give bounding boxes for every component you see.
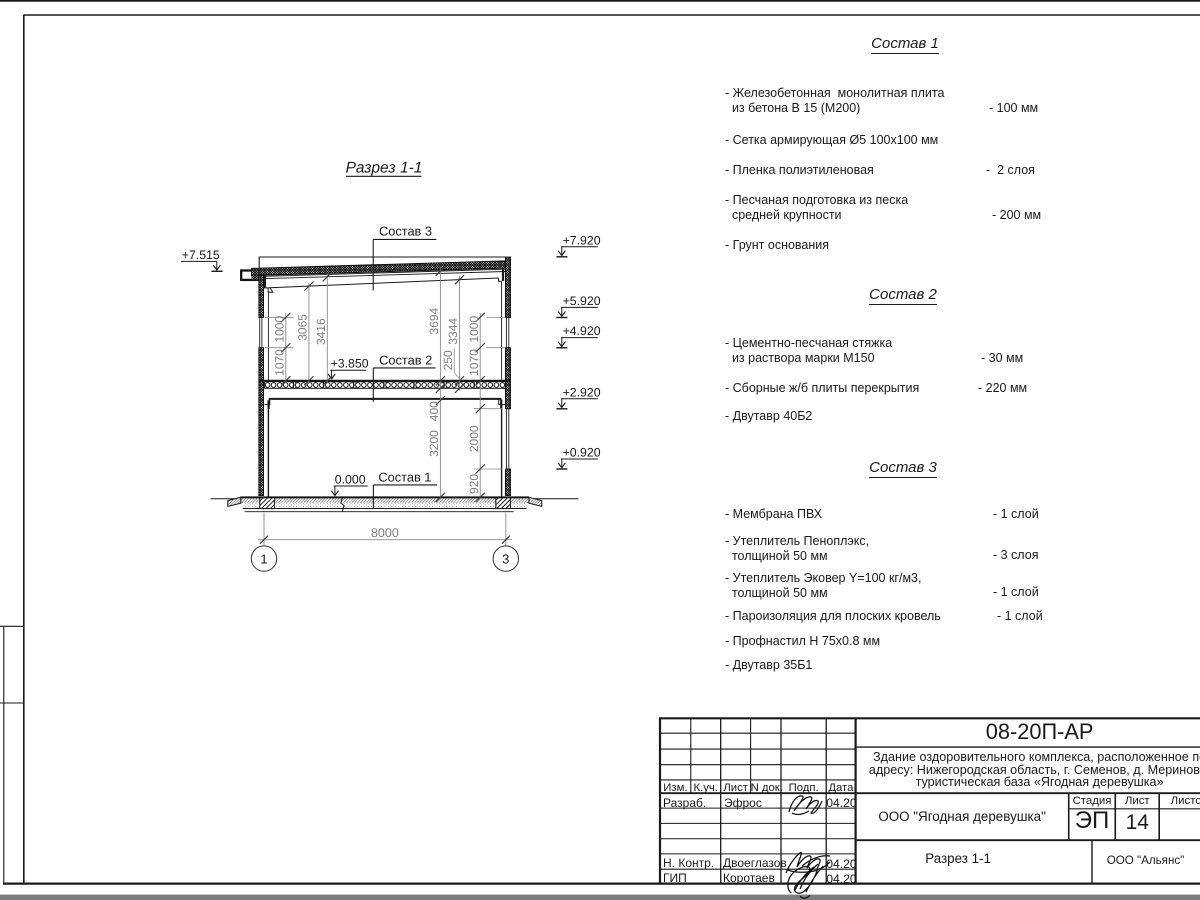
svg-text:1000: 1000 [467, 316, 481, 343]
svg-text:3694: 3694 [427, 307, 441, 334]
svg-text:Состав 2: Состав 2 [379, 352, 432, 367]
svg-text:3065: 3065 [296, 314, 310, 341]
svg-text:Разрез 1-1: Разрез 1-1 [346, 160, 423, 177]
svg-text:0.000: 0.000 [335, 473, 366, 487]
svg-text:+0.920: +0.920 [563, 446, 601, 460]
svg-text:2000: 2000 [467, 425, 481, 452]
svg-text:400: 400 [427, 401, 441, 421]
svg-text:920: 920 [467, 474, 481, 494]
svg-text:+5.920: +5.920 [563, 294, 601, 308]
svg-text:3200: 3200 [427, 430, 441, 457]
svg-text:1070: 1070 [467, 349, 481, 376]
svg-text:+7.515: +7.515 [182, 248, 220, 262]
svg-text:Состав 3: Состав 3 [379, 223, 432, 238]
svg-text:+7.920: +7.920 [563, 233, 601, 247]
svg-text:1: 1 [260, 551, 267, 566]
svg-text:3416: 3416 [314, 318, 328, 345]
svg-text:250: 250 [441, 350, 455, 370]
svg-text:+3.850: +3.850 [331, 357, 369, 371]
svg-text:8000: 8000 [371, 526, 399, 540]
svg-text:3344: 3344 [446, 318, 460, 345]
svg-text:3: 3 [502, 551, 509, 566]
svg-text:1000: 1000 [273, 316, 287, 343]
svg-text:+4.920: +4.920 [563, 324, 601, 338]
svg-text:Состав 1: Состав 1 [378, 469, 431, 484]
svg-text:1070: 1070 [273, 349, 287, 376]
svg-text:+2.920: +2.920 [563, 385, 601, 399]
